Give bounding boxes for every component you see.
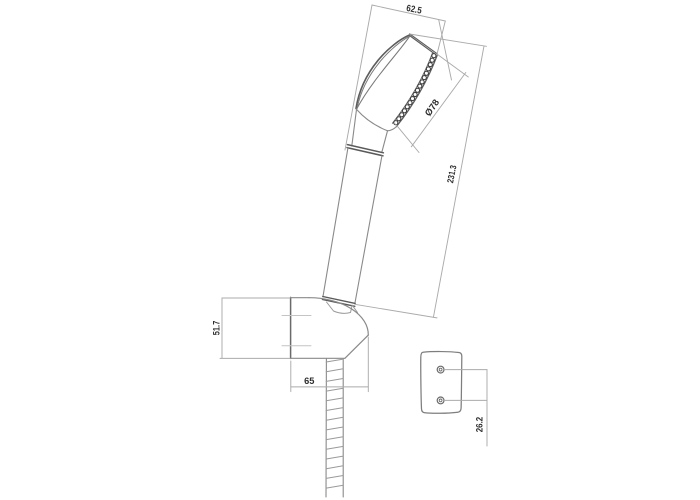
svg-text:51.7: 51.7: [212, 321, 222, 336]
svg-text:26.2: 26.2: [475, 417, 485, 433]
svg-text:65: 65: [304, 376, 314, 386]
